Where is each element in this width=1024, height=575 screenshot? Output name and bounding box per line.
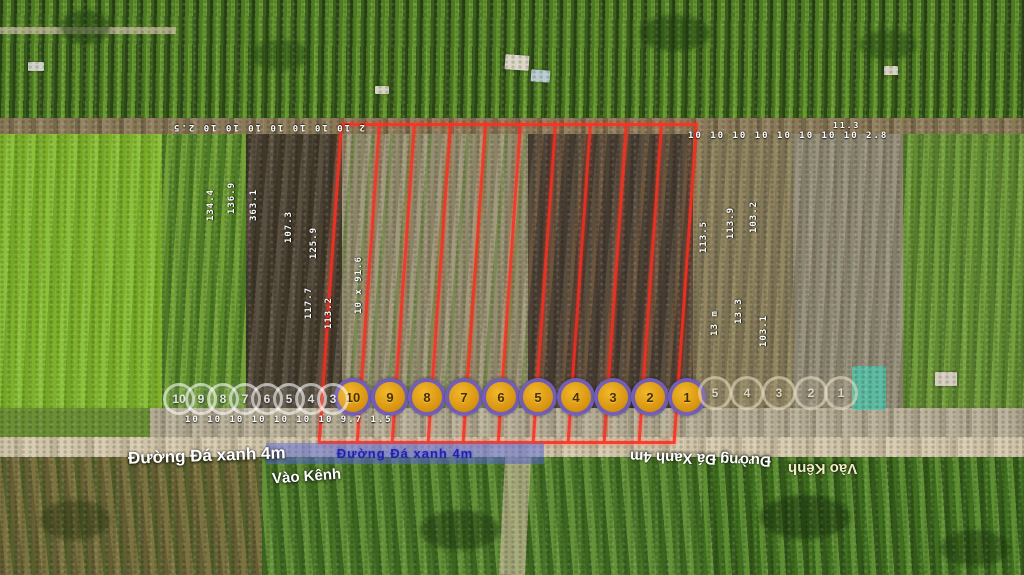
- plot-number: 1: [838, 386, 845, 400]
- dimension-vertical: 134.4: [206, 189, 216, 221]
- plot-marker-ghost: 2: [794, 376, 828, 410]
- plot-marker: 5: [519, 378, 557, 416]
- plot-number: 1: [683, 390, 690, 405]
- dimension-vertical: 103.2: [749, 201, 759, 233]
- plot-marker-ghost: 3: [762, 376, 796, 410]
- building-roof: [375, 86, 389, 94]
- tree-cluster: [940, 530, 1010, 566]
- field-strip: [162, 134, 246, 408]
- dimension-row-top-right: 10 10 10 10 10 10 10 10 2.8: [688, 131, 888, 141]
- plot-number: 3: [776, 386, 783, 400]
- tree-cluster: [250, 40, 310, 70]
- dimension-row-top-left: 2 10 10 10 10 10 10 10 2.5: [172, 122, 365, 132]
- plot-number: 7: [460, 390, 467, 405]
- field-strip: [793, 134, 903, 408]
- plot-marker: 9: [371, 378, 409, 416]
- plot-marker-ghost: 1: [824, 376, 858, 410]
- building-roof: [935, 372, 957, 386]
- plot-number: 5: [534, 390, 541, 405]
- dimension-vertical: 113.5: [699, 221, 709, 253]
- watermark-ribbon: Đường Đá xanh 4m: [266, 443, 544, 464]
- field-strip: [0, 134, 162, 408]
- plot-number: 10: [172, 392, 185, 406]
- plot-number: 4: [744, 386, 751, 400]
- dimension-vertical: 13 m: [710, 310, 720, 336]
- dimension-row-road: 10 10 10 10 10 10 10 9.7 1.5: [185, 415, 393, 425]
- field-strip: [903, 134, 1024, 408]
- dimension-vertical: 13.3: [734, 298, 744, 324]
- tree-cluster: [420, 510, 500, 550]
- plot-marker: 4: [557, 378, 595, 416]
- plot-marker: 8: [408, 378, 446, 416]
- plot-number: 3: [330, 392, 337, 406]
- plot-number: 4: [308, 392, 315, 406]
- dimension-vertical: 363.1: [249, 189, 259, 221]
- plot-number: 9: [198, 392, 205, 406]
- tree-cluster: [760, 495, 850, 539]
- building-roof: [884, 66, 898, 75]
- dimension-vertical: 113.9: [726, 207, 736, 239]
- plot-number: 8: [220, 392, 227, 406]
- plot-marker: 2: [631, 378, 669, 416]
- plot-marker: 6: [482, 378, 520, 416]
- tree-cluster: [860, 30, 916, 60]
- building-roof: [505, 54, 530, 71]
- plot-marker-ghost: 5: [698, 376, 732, 410]
- aerial-plot-map: 10 9 8 7 6 5 4 3 2 1 10 9 8 7 6 5 4 3 5 …: [0, 0, 1024, 575]
- plot-number: 7: [242, 392, 249, 406]
- ribbon-label: Đường Đá xanh 4m: [337, 446, 474, 461]
- dimension-vertical: 107.3: [284, 211, 294, 243]
- tree-cluster: [60, 10, 110, 44]
- dimension-vertical: 117.7: [304, 287, 314, 319]
- tree-cluster: [40, 500, 110, 540]
- plot-marker: 3: [594, 378, 632, 416]
- field-strip: [693, 134, 793, 408]
- canal-label-flipped: Vào Kênh: [788, 460, 857, 477]
- plot-number: 3: [609, 390, 616, 405]
- dimension-vertical: 136.9: [227, 182, 237, 214]
- building-roof: [28, 62, 44, 71]
- dimension-vertical: 125.9: [309, 227, 319, 259]
- plot-number: 2: [646, 390, 653, 405]
- dimension-extra: 11.3: [833, 121, 860, 130]
- plot-marker: 7: [445, 378, 483, 416]
- plot-side-dimension: 10 x 91.6: [354, 256, 364, 314]
- plot-number: 5: [712, 386, 719, 400]
- plot-number: 5: [286, 392, 293, 406]
- orchard-rows-bottom: [0, 457, 262, 575]
- tree-cluster: [640, 15, 710, 51]
- plot-number: 6: [264, 392, 271, 406]
- dimension-vertical: 103.1: [759, 315, 769, 347]
- dimension-vertical: 113.2: [324, 297, 334, 329]
- plot-marker-ghost: 3: [317, 383, 349, 415]
- plot-number: 4: [572, 390, 579, 405]
- plot-number: 8: [423, 390, 430, 405]
- plot-number: 6: [497, 390, 504, 405]
- plot-marker-ghost: 4: [730, 376, 764, 410]
- plot-number: 9: [386, 390, 393, 405]
- building-roof: [531, 69, 551, 82]
- plot-number: 2: [808, 386, 815, 400]
